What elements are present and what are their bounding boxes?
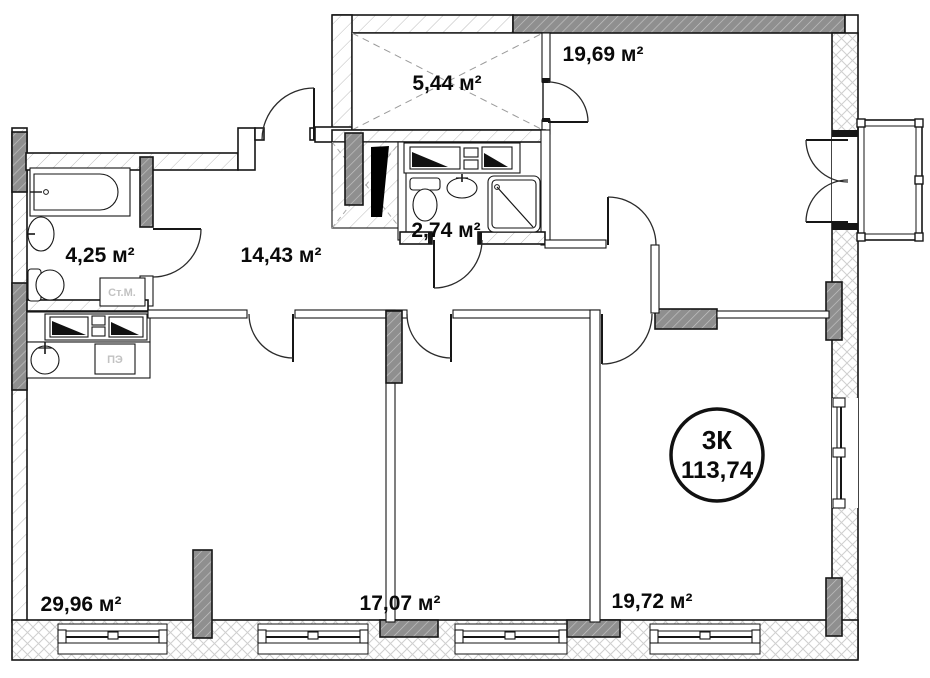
door-room-19-69	[608, 197, 656, 245]
door-room-17-07	[407, 314, 451, 362]
room-label-kitchen-living: 29,96 м²	[41, 593, 122, 616]
door-kitchen-living	[249, 314, 293, 362]
top-wall-dark	[513, 15, 845, 33]
kitchen-unit: ПЭ	[27, 312, 150, 378]
top-wall-light	[333, 15, 513, 33]
balcony-post	[857, 119, 865, 127]
bathroom-small-door	[434, 240, 482, 288]
room-label-wardrobe: 5,44 м²	[412, 72, 481, 95]
pier-column-1	[193, 550, 212, 638]
wardrobe-south-wall	[332, 130, 545, 142]
stove-label: ПЭ	[107, 354, 123, 366]
partition-column	[655, 309, 717, 329]
area-badge: 3К 113,74	[671, 409, 763, 501]
room-label-bathroom-small: 2,74 м²	[411, 219, 480, 242]
door-room-19-72	[602, 314, 652, 364]
balcony	[806, 119, 923, 241]
balcony-post	[915, 233, 923, 241]
bathroom-left-fixtures: Ст.М.	[27, 168, 201, 306]
bathtub-icon	[30, 168, 130, 216]
badge-circle	[671, 409, 763, 501]
entrance-door	[262, 88, 314, 140]
utility-shaft	[332, 133, 400, 228]
shaft-column	[345, 133, 363, 205]
wardrobe-west-wall	[332, 15, 352, 142]
entrance-step	[238, 128, 255, 170]
right-wall-column-2	[826, 578, 842, 636]
sink-icon	[447, 174, 477, 198]
bottom-window-4	[650, 624, 760, 654]
left-wall-column-mid	[12, 283, 27, 390]
shower-icon	[488, 176, 540, 232]
bathroom-small-fixtures	[404, 143, 540, 288]
balcony-post	[915, 176, 923, 184]
toilet-icon	[28, 269, 64, 301]
floor-plan: Ст.М. ПЭ	[0, 0, 930, 678]
balcony-jamb-bottom	[832, 223, 858, 230]
left-wall-column-top	[12, 132, 27, 192]
bottom-window-2	[258, 624, 368, 654]
sink-icon	[27, 217, 54, 251]
room-label-hallway: 14,43 м²	[241, 244, 322, 267]
bottom-window-1	[58, 624, 167, 654]
partition-column	[386, 311, 402, 383]
toilet-icon	[410, 178, 440, 221]
room-label-room-right: 19,72 м²	[612, 590, 693, 613]
badge-area: 113,74	[681, 457, 754, 484]
bottom-window-3	[455, 624, 567, 654]
room-label-bathroom-left: 4,25 м²	[65, 244, 134, 267]
partition-17-19	[590, 310, 600, 622]
balcony-jamb-top	[832, 130, 858, 137]
balcony-post	[857, 233, 865, 241]
right-window	[832, 398, 858, 508]
washing-machine-label: Ст.М.	[108, 287, 136, 299]
bathroom-left-door	[153, 229, 201, 277]
wardrobe-door	[548, 82, 588, 122]
top-left-wall	[26, 153, 238, 170]
right-wall	[832, 33, 858, 658]
room-label-room-top-right: 19,69 м²	[563, 43, 644, 66]
room-label-room-mid: 17,07 м²	[360, 592, 441, 615]
balcony-post	[915, 119, 923, 127]
badge-code: 3К	[702, 425, 732, 455]
